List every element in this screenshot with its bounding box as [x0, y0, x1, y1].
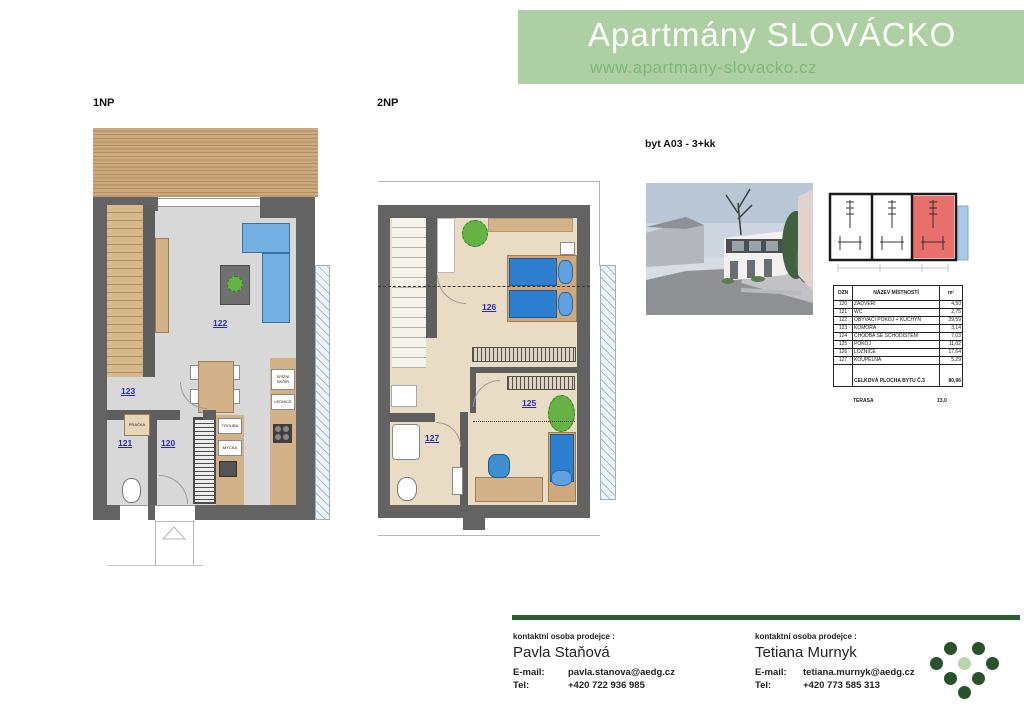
wall	[296, 197, 315, 520]
cell	[834, 365, 853, 387]
total-label: CELKOVÁ PLOCHA BYTU Č.3	[853, 365, 940, 387]
entry-opening	[155, 505, 195, 522]
cell: 11,02	[940, 341, 963, 349]
sofa	[242, 223, 290, 253]
neighbor-wall-hatch	[315, 265, 330, 520]
washing-machine: PRAČKA	[124, 414, 150, 436]
table-row: 121WC2,75	[834, 309, 963, 317]
oven: TROUBA	[218, 418, 242, 434]
header-banner: Apartmány SLOVÁCKO www.apartmany-slovack…	[518, 10, 1024, 84]
tel-value: +420 722 936 985	[568, 680, 645, 691]
room-number-123: 123	[121, 386, 135, 396]
entry-arrow-icon	[161, 525, 187, 541]
logo-dot-icon	[972, 672, 985, 685]
cell: 120	[834, 301, 853, 309]
pillow	[558, 292, 573, 316]
logo-dot-icon	[930, 657, 943, 670]
fridge: LEDNICE	[271, 394, 295, 410]
wall	[378, 205, 590, 218]
partition-wall	[470, 373, 476, 413]
nightstand	[560, 242, 575, 255]
terrace-deck	[93, 128, 318, 197]
wardrobe	[155, 238, 169, 333]
cell: LOŽNICE	[853, 349, 940, 357]
cell: 121	[834, 309, 853, 317]
mattress	[509, 290, 557, 318]
plant-icon	[227, 276, 243, 292]
unit-label: byt A03 - 3+kk	[645, 138, 716, 150]
cell: 123	[834, 325, 853, 333]
section-line	[378, 286, 590, 287]
cell: WC	[853, 309, 940, 317]
table-total-row: CELKOVÁ PLOCHA BYTU Č.3 80,96	[834, 365, 963, 387]
walkway-line	[193, 520, 194, 565]
contact-block-1: kontaktní osoba prodejce : Pavla Staňová…	[513, 632, 733, 691]
roof-outline	[378, 181, 600, 182]
cell: 126	[834, 349, 853, 357]
stairs-2np	[392, 218, 426, 368]
bathtub	[392, 424, 420, 460]
table-row: 123KOMORA3,14	[834, 325, 963, 333]
plant-icon	[548, 395, 575, 432]
tel-label: Tel:	[755, 680, 803, 691]
floor2-label: 2NP	[377, 97, 398, 109]
cell: KOUPELNA	[853, 357, 940, 365]
sofa	[262, 253, 290, 323]
plant-icon	[462, 220, 488, 247]
cooktop	[273, 424, 292, 443]
email-label: E-mail:	[755, 667, 803, 678]
room-number-125: 125	[522, 398, 536, 408]
mattress	[509, 258, 557, 286]
flyer-page: Apartmány SLOVÁCKO www.apartmany-slovack…	[0, 0, 1024, 724]
logo-dot-icon	[958, 657, 971, 670]
terasa-label: TERASA	[853, 398, 874, 404]
room-number-126: 126	[482, 302, 496, 312]
cell: 4,50	[940, 301, 963, 309]
cell: OBÝVACÍ POKOJ + KUCHYŇ	[853, 317, 940, 325]
sink	[219, 461, 237, 477]
logo	[920, 634, 1000, 700]
floorplan-1np: 122 SPÍŽNÍ SKŘÍŇ LEDNICE TROUBA MYČKA	[93, 128, 333, 578]
neighbor-wall-hatch	[600, 265, 616, 500]
tel-value: +420 773 585 313	[803, 680, 880, 691]
room-table: OZN NÁZEV MÍSTNOSTÍ m² 120ZÁDVEŘÍ4,50 12…	[833, 285, 963, 387]
toilet	[397, 477, 417, 501]
cell: POKOJ	[853, 341, 940, 349]
wardrobe-hatch	[472, 347, 576, 362]
cell: 7,03	[940, 333, 963, 341]
cell: 2,75	[940, 309, 963, 317]
desk	[475, 477, 543, 502]
table-row: 125POKOJ11,02	[834, 341, 963, 349]
cell: 122	[834, 317, 853, 325]
stair-partition	[143, 205, 155, 377]
partition-wall	[388, 413, 435, 422]
cell: 124	[834, 333, 853, 341]
col-header-m2: m²	[940, 286, 963, 301]
col-header-ozn: OZN	[834, 286, 853, 301]
wall	[577, 205, 590, 518]
burner-icon	[275, 434, 281, 440]
walkway-line	[107, 565, 203, 566]
washbasin	[452, 467, 463, 495]
pillow	[558, 260, 573, 284]
walkway-line	[155, 520, 156, 565]
cell: 17,64	[940, 349, 963, 357]
chimney-block	[463, 505, 485, 530]
window-band	[158, 198, 260, 207]
window-opening	[120, 505, 148, 521]
email-value: pavla.stanova@aedg.cz	[568, 667, 675, 678]
partition-wall	[470, 367, 577, 373]
cell: 127	[834, 357, 853, 365]
cell: CHODBA SE SCHODIŠTĚM	[853, 333, 940, 341]
logo-dot-icon	[986, 657, 999, 670]
col-header-name: NÁZEV MÍSTNOSTÍ	[853, 286, 940, 301]
room-number-122: 122	[213, 318, 227, 328]
email-label: E-mail:	[513, 667, 568, 678]
burner-icon	[283, 434, 289, 440]
wall	[378, 205, 390, 518]
closet-panel	[437, 218, 455, 273]
contact-heading: kontaktní osoba prodejce :	[513, 632, 733, 641]
wardrobe-hatch	[507, 376, 575, 390]
site-plan	[828, 190, 973, 275]
cell: 29,59	[940, 317, 963, 325]
logo-dot-icon	[972, 642, 985, 655]
floor1-label: 1NP	[93, 97, 114, 109]
logo-dot-icon	[958, 686, 971, 699]
cell: 5,29	[940, 357, 963, 365]
wall	[93, 197, 107, 520]
table-row: 120ZÁDVEŘÍ4,50	[834, 301, 963, 309]
contact-tel-row: Tel: +420 722 936 985	[513, 680, 733, 691]
cell: KOMORA	[853, 325, 940, 333]
roof-outline	[378, 535, 600, 536]
footer-divider-bar	[512, 615, 1020, 620]
pillow	[551, 470, 572, 486]
stairs-1np	[107, 205, 143, 377]
total-value: 80,96	[940, 365, 963, 387]
dishwasher: MYČKA	[218, 440, 242, 456]
logo-dot-icon	[944, 642, 957, 655]
floorplan-2np: 126 125 124 127	[378, 180, 623, 545]
toilet	[122, 478, 141, 503]
staircase-hatch	[193, 417, 216, 504]
room-number-120: 120	[161, 438, 175, 448]
cell: 125	[834, 341, 853, 349]
page-title: Apartmány SLOVÁCKO	[588, 16, 956, 54]
closet	[391, 385, 417, 407]
tel-label: Tel:	[513, 680, 568, 691]
website-url: www.apartmany-slovacko.cz	[590, 58, 817, 78]
shelf	[488, 218, 573, 232]
stair-partition	[426, 218, 437, 338]
sliding-door-line	[473, 421, 575, 422]
logo-dot-icon	[944, 672, 957, 685]
pantry-cabinet: SPÍŽNÍ SKŘÍŇ	[271, 369, 295, 390]
partition-wall	[203, 410, 216, 420]
contact-name: Pavla Staňová	[513, 644, 733, 661]
contact-email-row: E-mail: pavla.stanova@aedg.cz	[513, 667, 733, 678]
burner-icon	[283, 426, 289, 432]
table-row: 124CHODBA SE SCHODIŠTĚM7,03	[834, 333, 963, 341]
table-row: 122OBÝVACÍ POKOJ + KUCHYŇ29,59	[834, 317, 963, 325]
table-row: 127KOUPELNA5,29	[834, 357, 963, 365]
cell: ZÁDVEŘÍ	[853, 301, 940, 309]
terasa-value: 13,0	[937, 398, 947, 404]
burner-icon	[275, 426, 281, 432]
desk-chair	[488, 454, 510, 478]
table-header-row: OZN NÁZEV MÍSTNOSTÍ m²	[834, 286, 963, 301]
exterior-render-photo	[646, 183, 813, 315]
email-value: tetiana.murnyk@aedg.cz	[803, 667, 915, 678]
room-number-121: 121	[118, 438, 132, 448]
table-row: 126LOŽNICE17,64	[834, 349, 963, 357]
cell: 3,14	[940, 325, 963, 333]
roof-outline	[599, 181, 600, 266]
